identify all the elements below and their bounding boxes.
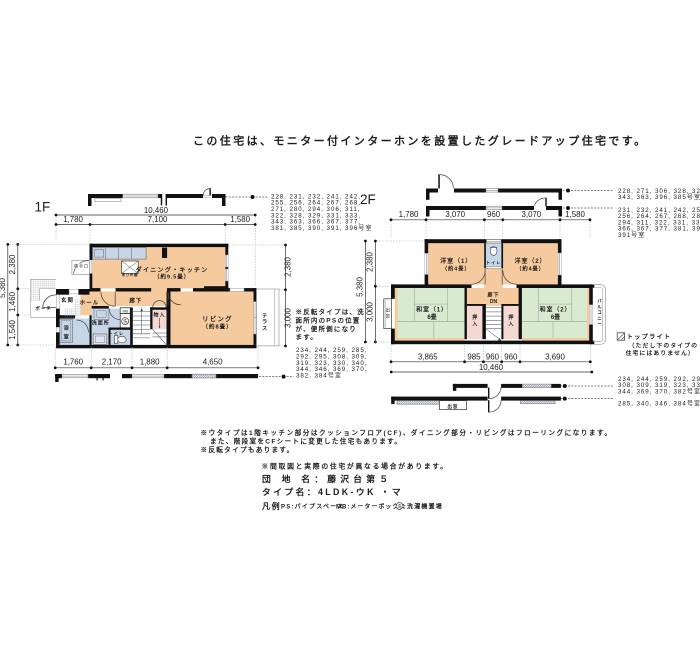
svg-text:洗面所: 洗面所: [92, 320, 110, 327]
svg-text:2,380: 2,380: [284, 257, 293, 277]
svg-text:2,170: 2,170: [102, 357, 122, 366]
svg-text:洋室（2）: 洋室（2）: [515, 257, 547, 265]
svg-text:玄関: 玄関: [61, 296, 74, 304]
svg-text:タイプ名：4LDK-ウK ・マ: タイプ名：4LDK-ウK ・マ: [262, 486, 403, 497]
svg-text:凡例: 凡例: [262, 501, 281, 511]
svg-text:3,000: 3,000: [284, 308, 293, 328]
svg-text:DN: DN: [490, 299, 498, 305]
svg-text:10,460: 10,460: [479, 363, 504, 372]
svg-text:和室（1）: 和室（1）: [415, 306, 448, 314]
svg-text:浴: 浴: [64, 323, 70, 331]
svg-text:3,070: 3,070: [445, 210, 465, 219]
svg-text:※反転タイプは、洗: ※反転タイプは、洗: [296, 307, 365, 316]
svg-text:960: 960: [487, 210, 501, 219]
svg-text:391号室: 391号室: [618, 231, 645, 239]
svg-text:ダイニング・キッチン: ダイニング・キッチン: [136, 266, 209, 274]
svg-text:1,760: 1,760: [63, 357, 83, 366]
svg-text:7,100: 7,100: [148, 215, 168, 224]
svg-text:洋室（1）: 洋室（1）: [440, 257, 472, 265]
svg-text:4,650: 4,650: [203, 357, 223, 366]
svg-text:出窓: 出窓: [447, 403, 458, 410]
svg-text:1,880: 1,880: [140, 357, 160, 366]
svg-text:382, 384号室: 382, 384号室: [296, 371, 342, 379]
svg-text:ー: ー: [597, 322, 602, 327]
svg-text:押: 押: [472, 314, 477, 321]
svg-text:が、便所側になり: が、便所側になり: [296, 324, 357, 333]
svg-text:ル: ル: [597, 304, 602, 309]
svg-text:入: 入: [508, 322, 513, 328]
svg-text:また、階段室をCFシートに変更した住宅もあります。: また、階段室をCFシートに変更した住宅もあります。: [210, 437, 402, 446]
svg-text:985: 985: [467, 352, 481, 361]
svg-text:6畳: 6畳: [551, 313, 560, 321]
svg-text:2,380: 2,380: [8, 254, 17, 274]
svg-text:物入: 物入: [153, 312, 165, 319]
svg-text:960: 960: [486, 352, 500, 361]
svg-text:（約9.5畳）: （約9.5畳）: [154, 273, 190, 281]
svg-text:コ: コ: [597, 310, 601, 315]
svg-text:バ: バ: [597, 299, 602, 304]
svg-text:廊下: 廊下: [487, 292, 499, 299]
svg-text:リビング: リビング: [202, 314, 233, 323]
svg-text:MB:メーターボックス: MB:メーターボックス: [336, 502, 406, 510]
svg-text:テ: テ: [262, 313, 267, 320]
svg-text:※ウタイプは1階キッチン部分はクッションフロア(CF)、ダイ: ※ウタイプは1階キッチン部分はクッションフロア(CF)、ダイニング部分・リビング…: [201, 428, 613, 437]
svg-text:1,780: 1,780: [63, 215, 83, 224]
svg-text:団 地 名：藤沢台第５: 団 地 名：藤沢台第５: [262, 473, 392, 484]
svg-text:1,780: 1,780: [399, 210, 419, 219]
svg-text:ホール: ホール: [80, 300, 99, 307]
svg-text:1,540: 1,540: [8, 320, 17, 340]
svg-text:廊下: 廊下: [129, 296, 142, 304]
svg-text:960: 960: [504, 352, 518, 361]
svg-text:（ただし下のタイプの: （ただし下のタイプの: [629, 342, 699, 350]
svg-text:（約4畳）: （約4畳）: [442, 264, 471, 272]
svg-text:※反転タイプもあります。: ※反転タイプもあります。: [201, 445, 295, 454]
svg-text:2,380: 2,380: [366, 252, 375, 272]
svg-text:381, 385, 390, 391, 396号室: 381, 385, 390, 391, 396号室: [271, 224, 373, 232]
svg-text:入: 入: [472, 322, 477, 328]
svg-text:5,380: 5,380: [356, 277, 365, 297]
svg-text:洗: 洗: [123, 318, 128, 325]
svg-text:MB: MB: [123, 310, 129, 314]
svg-text:344, 369, 370, 382号室: 344, 369, 370, 382号室: [618, 387, 700, 395]
svg-text:3,865: 3,865: [418, 352, 438, 361]
svg-text:トイレ: トイレ: [108, 331, 124, 336]
svg-text:1,460: 1,460: [8, 291, 17, 311]
svg-text:トイレ: トイレ: [486, 260, 501, 265]
svg-text:343, 363, 396, 385号室: 343, 363, 396, 385号室: [618, 193, 700, 201]
svg-text:※間取図と実際の住宅が異なる場合があります。: ※間取図と実際の住宅が異なる場合があります。: [262, 462, 449, 471]
svg-text:3,000: 3,000: [366, 302, 375, 322]
svg-text:住宅にはありません）: 住宅にはありません）: [626, 349, 695, 357]
svg-text:2F: 2F: [360, 192, 376, 207]
svg-text:トップライト: トップライト: [627, 333, 672, 341]
svg-text:ポーチ: ポーチ: [35, 305, 52, 312]
svg-text:面所内のPSの位置: 面所内のPSの位置: [296, 316, 361, 325]
svg-text::洗濯機置場: :洗濯機置場: [404, 502, 443, 510]
svg-text:5,380: 5,380: [0, 278, 7, 298]
svg-text:ラ: ラ: [262, 319, 267, 326]
svg-text:出: 出: [386, 307, 390, 314]
svg-text:6畳: 6畳: [427, 313, 436, 321]
svg-text:285, 340, 346, 384号室: 285, 340, 346, 384号室: [618, 399, 700, 407]
svg-text:（約4畳）: （約4畳）: [516, 264, 545, 272]
svg-text:吊り戸棚: 吊り戸棚: [122, 272, 138, 277]
svg-text:ニ: ニ: [597, 316, 601, 321]
svg-text:1,580: 1,580: [230, 215, 250, 224]
svg-text:1F: 1F: [35, 200, 51, 215]
svg-text:1,580: 1,580: [565, 210, 585, 219]
svg-text:（約8畳）: （約8畳）: [202, 322, 232, 330]
svg-text:ます。: ます。: [296, 332, 318, 341]
svg-text:3,070: 3,070: [522, 210, 542, 219]
svg-text:10,460: 10,460: [144, 206, 169, 215]
svg-text:窓: 窓: [386, 313, 391, 319]
svg-text:PS:パイプスペース: PS:パイプスペース: [281, 502, 344, 510]
svg-text:室: 室: [64, 333, 69, 341]
svg-text:勝手口: 勝手口: [74, 263, 89, 269]
svg-text:押: 押: [508, 314, 513, 321]
svg-text:洗: 洗: [397, 503, 402, 510]
svg-text:3,690: 3,690: [545, 352, 565, 361]
svg-text:和室（2）: 和室（2）: [539, 306, 572, 314]
svg-text:ス: ス: [262, 325, 267, 332]
svg-text:この住宅は、モニター付インターホンを設置したグレードアップ住: この住宅は、モニター付インターホンを設置したグレードアップ住宅です。: [193, 134, 648, 148]
